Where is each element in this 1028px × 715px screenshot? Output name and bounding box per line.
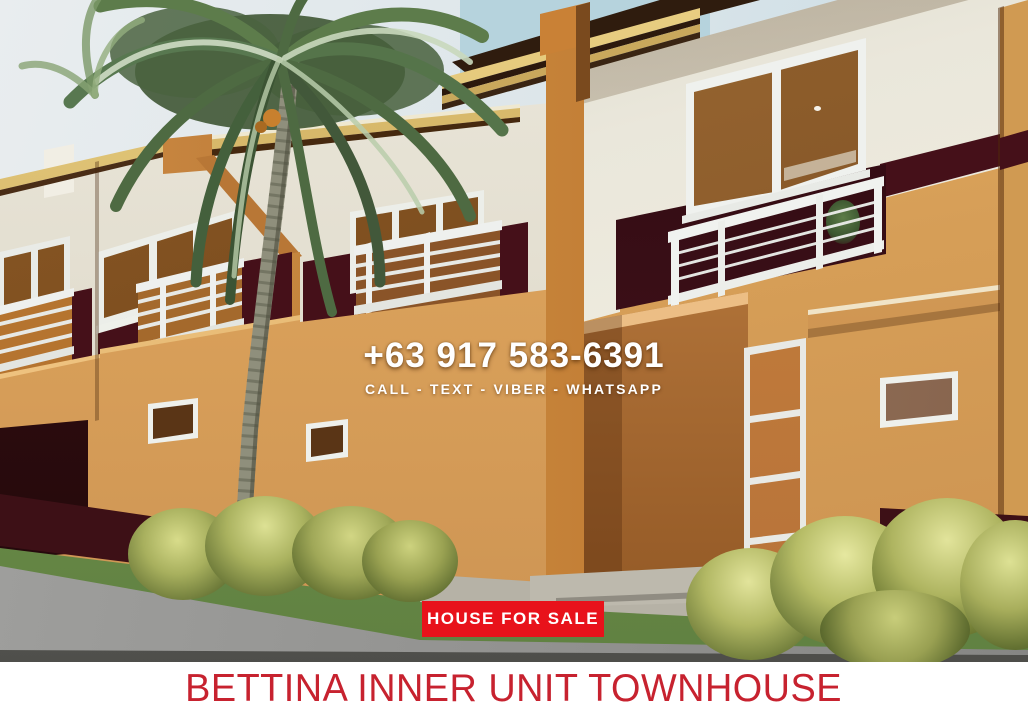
banner-title: BETTINA INNER UNIT TOWNHOUSE	[186, 667, 843, 711]
phone-number: +63 917 583-6391	[0, 336, 1028, 376]
contact-methods: CALL - TEXT - VIBER - WHATSAPP	[0, 381, 1028, 397]
title-banner: BETTINA INNER UNIT TOWNHOUSE	[0, 662, 1028, 715]
listing-photo: +63 917 583-6391 CALL - TEXT - VIBER - W…	[0, 0, 1028, 715]
house-for-sale-badge: HOUSE FOR SALE	[422, 601, 604, 637]
house-for-sale-label: HOUSE FOR SALE	[427, 609, 599, 629]
